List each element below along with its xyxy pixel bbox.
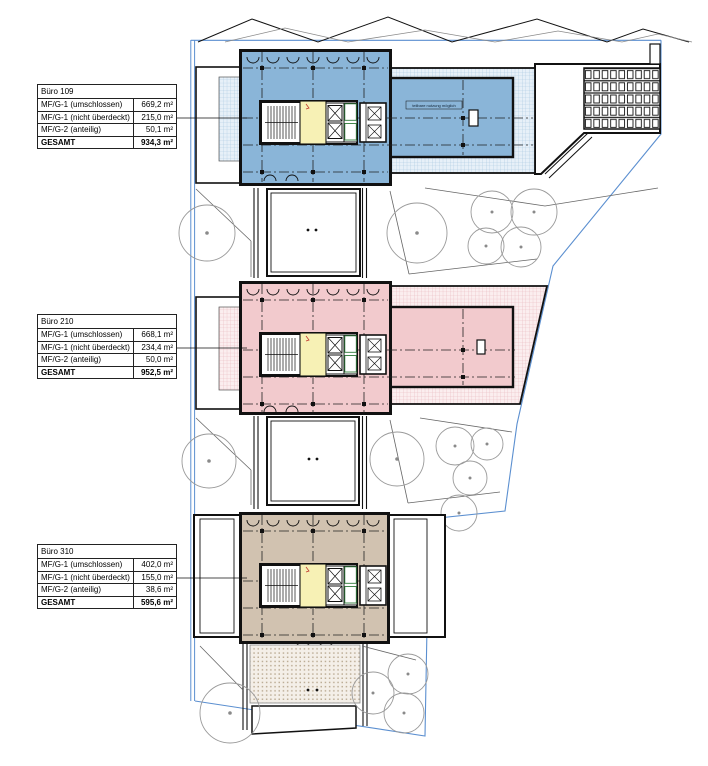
area-table-buero-210: Büro 210 MF/G-1 (umschlossen)668,1 m² MF… [37,314,177,379]
lower-terrace [252,706,356,734]
shaft-northeast [650,44,660,64]
wing-shaft [477,340,485,354]
courtyard-1 [179,188,658,278]
total-value: 595,6 m² [133,596,176,609]
table-total-row: GESAMT934,3 m² [38,136,177,149]
area-row-value: 234,4 m² [133,341,176,354]
area-row-label: MF/G-1 (nicht überdeckt) [38,341,134,354]
table-row: MF/G-1 (umschlossen)402,0 m² [38,559,177,572]
table-row: MF/G-2 (anteilig)38,6 m² [38,584,177,597]
area-table-buero-109: Büro 109 MF/G-1 (umschlossen)669,2 m² MF… [37,84,177,149]
table-total-row: GESAMT595,6 m² [38,596,177,609]
area-row-label: MF/G-1 (nicht überdeckt) [38,111,134,124]
table-row: MF/G-1 (umschlossen)668,1 m² [38,329,177,342]
area-row-value: 155,0 m² [133,571,176,584]
table-total-row: GESAMT952,5 m² [38,366,177,379]
area-row-label: MF/G-1 (umschlossen) [38,329,134,342]
total-label: GESAMT [38,366,134,379]
level-buero-109-blue: teilbare nutzung möglich [196,44,660,185]
area-row-label: MF/G-2 (anteilig) [38,124,134,137]
area-row-value: 402,0 m² [133,559,176,572]
total-label: GESAMT [38,136,134,149]
table-title: Büro 210 [38,315,177,329]
wing-annotation: teilbare nutzung möglich [412,103,455,108]
architectural-plan-page: teilbare nutzung möglich [0,0,708,766]
table-row: MF/G-2 (anteilig)50,0 m² [38,354,177,367]
area-row-value: 50,0 m² [133,354,176,367]
wing-shaft [469,110,478,126]
area-row-value: 50,1 m² [133,124,176,137]
adjacent-roofline-zigzag [198,17,692,42]
terrace-west-inner [200,519,234,633]
terrace-east-inner [394,519,427,633]
table-title: Büro 310 [38,545,177,559]
area-row-value: 38,6 m² [133,584,176,597]
level-buero-210-pink [196,283,547,414]
table-row: MF/G-1 (umschlossen)669,2 m² [38,99,177,112]
area-row-value: 668,1 m² [133,329,176,342]
table-title: Büro 109 [38,85,177,99]
gravel-court [250,645,360,703]
wing-east [390,307,513,387]
area-table-buero-310: Büro 310 MF/G-1 (umschlossen)402,0 m² MF… [37,544,177,609]
area-row-label: MF/G-1 (umschlossen) [38,99,134,112]
table-row: MF/G-1 (nicht überdeckt)155,0 m² [38,571,177,584]
table-row: MF/G-2 (anteilig)50,1 m² [38,124,177,137]
total-value: 934,3 m² [133,136,176,149]
leader-lines [177,118,247,578]
table-row: MF/G-1 (nicht überdeckt)215,0 m² [38,111,177,124]
roof-grate [584,68,660,129]
atrium-void-inner [271,421,355,501]
area-row-label: MF/G-1 (nicht überdeckt) [38,571,134,584]
south-garden [200,643,428,743]
trees [179,189,557,267]
total-value: 952,5 m² [133,366,176,379]
level-buero-310-brown [194,514,445,650]
table-row: MF/G-1 (nicht überdeckt)234,4 m² [38,341,177,354]
area-row-label: MF/G-1 (umschlossen) [38,559,134,572]
atrium-void-inner [271,193,356,272]
total-label: GESAMT [38,596,134,609]
area-row-value: 215,0 m² [133,111,176,124]
area-row-label: MF/G-2 (anteilig) [38,354,134,367]
area-row-value: 669,2 m² [133,99,176,112]
area-row-label: MF/G-2 (anteilig) [38,584,134,597]
